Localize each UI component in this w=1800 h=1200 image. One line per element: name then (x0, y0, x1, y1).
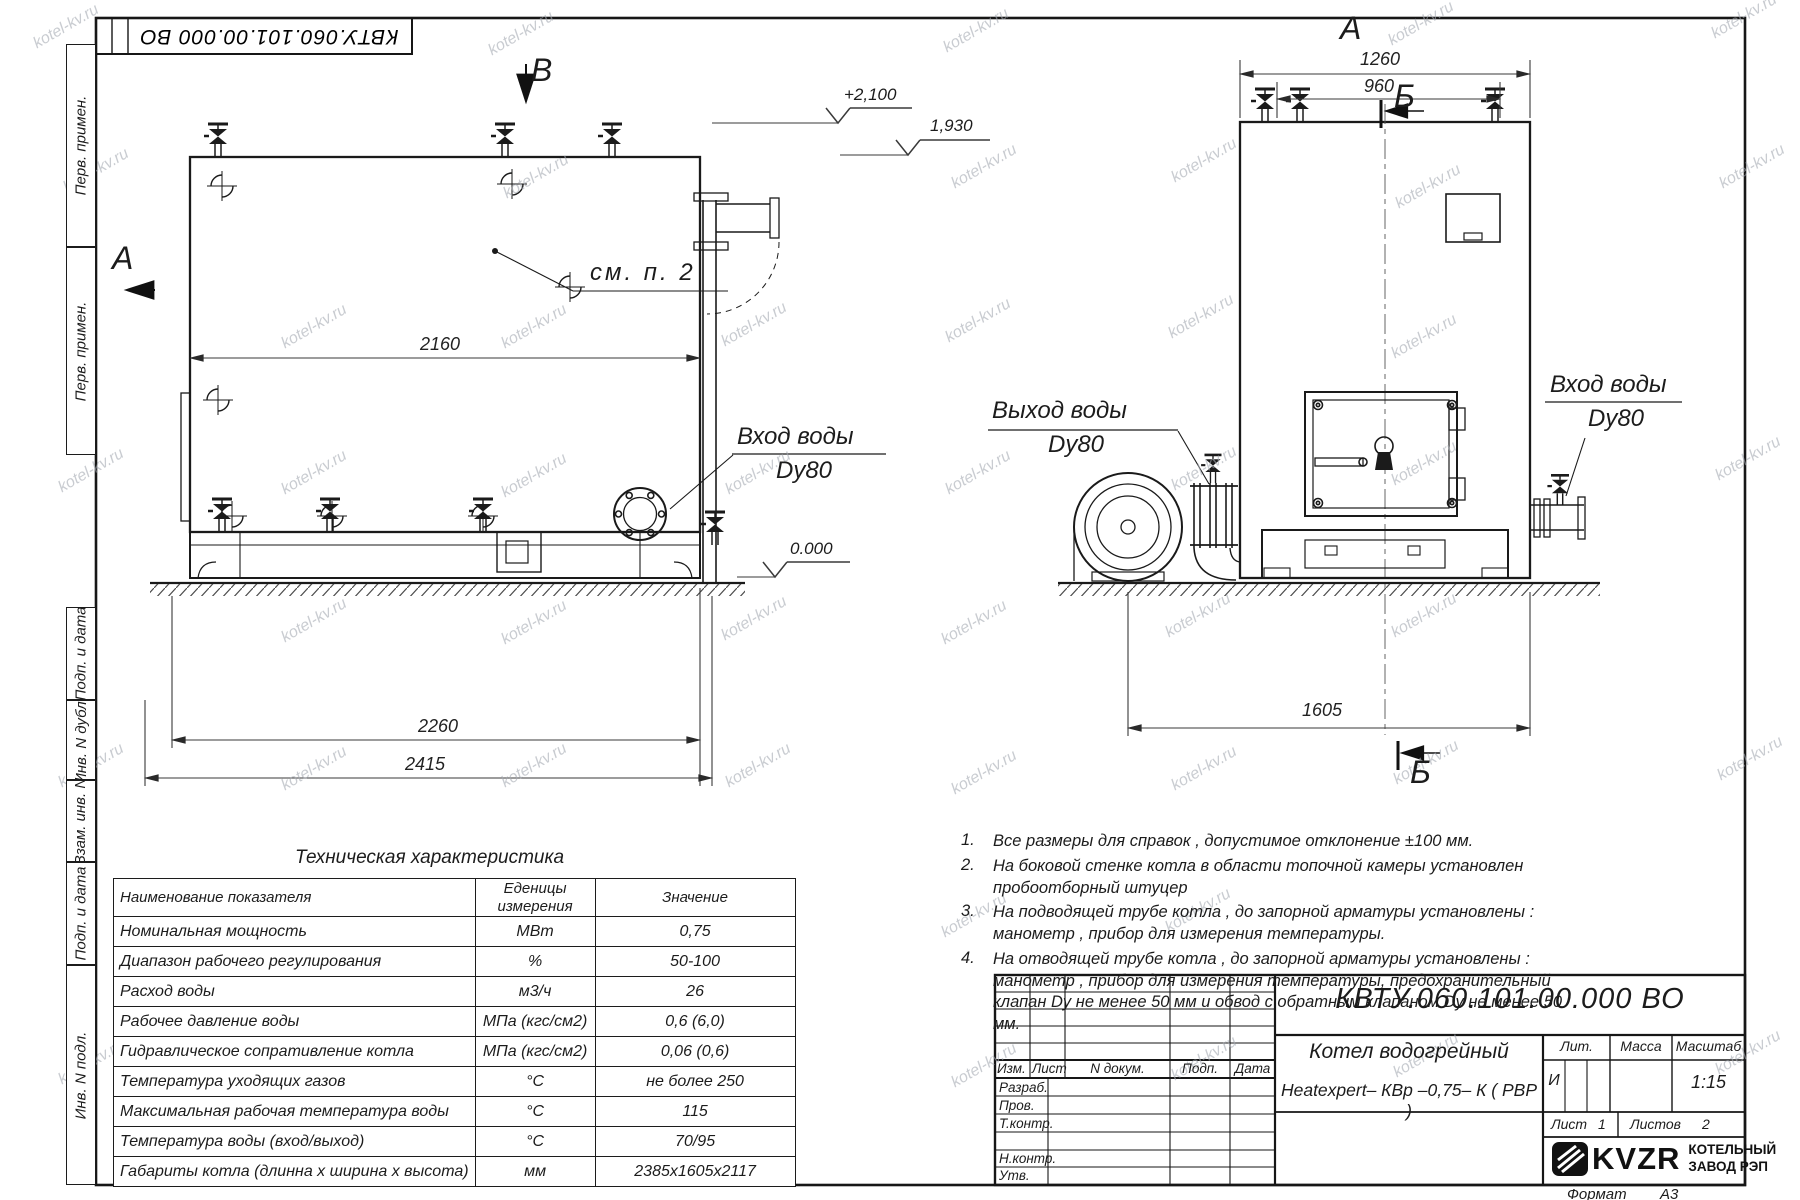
elevation-2100: +2,100 (844, 86, 896, 104)
table-row: Расход водым3/ч26 (114, 977, 796, 1007)
tech-table: Наименование показателя Еденицы измерени… (113, 878, 796, 1187)
view-mark-a-top: А (1340, 12, 1361, 46)
dim-1605: 1605 (1302, 701, 1342, 720)
table-row: Габариты котла (длинна х ширина х высота… (114, 1157, 796, 1187)
note-item: 2.На боковой стенке котла в области топо… (961, 856, 1586, 900)
water-inlet-label-front: Вход воды (1550, 372, 1667, 397)
tech-col-value: Значение (595, 879, 795, 917)
dim-2160: 2160 (420, 335, 460, 354)
format-label: Формат (1567, 1186, 1627, 1200)
right-view-dimensions (1128, 60, 1530, 770)
strip-cell-podp-data-2: Подп. и дата (66, 862, 96, 965)
kvzr-logo-icon (1551, 1141, 1589, 1177)
strip-cell-podp-data-1: Подп. и дата (66, 607, 96, 700)
row-approved: Утв. (999, 1168, 1030, 1183)
logo-text: KVZR (1592, 1141, 1680, 1177)
position-mark-icons (203, 169, 585, 531)
section-mark-b-top: Б (1394, 80, 1415, 114)
col-izm: Изм. (997, 1061, 1029, 1076)
row-tcontrol: Т.контр. (999, 1116, 1053, 1131)
water-inlet-dn-front: Dy80 (1588, 406, 1644, 431)
water-inlet-dn-side: Dy80 (776, 458, 832, 483)
strip-cell-vzam-inv: Взам. инв. N (66, 780, 96, 862)
sheets-value: 2 (1702, 1116, 1710, 1132)
valve-icons-left-view (204, 124, 725, 545)
dim-1260: 1260 (1360, 50, 1400, 69)
note-item: 3.На подводящей трубе котла , до запорно… (961, 902, 1586, 946)
strip-cell-inv-podl: Инв. N подл. (66, 965, 96, 1185)
format-value: А3 (1660, 1186, 1678, 1200)
table-row: Максимальная рабочая температура воды°С1… (114, 1097, 796, 1127)
dim-2260: 2260 (418, 717, 458, 736)
tech-col-units: Еденицы измерения (475, 879, 595, 917)
strip-cell-perv-primen-2: Перв. примен. (66, 247, 96, 455)
title-doc-number: КВТУ.060.101.00.000 ВО (1280, 983, 1740, 1016)
row-developed: Разраб. (999, 1080, 1048, 1095)
row-ncontrol: Н.контр. (999, 1151, 1056, 1166)
section-mark-b-bottom: Б (1410, 756, 1431, 790)
scale-value: 1:15 (1672, 1072, 1745, 1093)
table-row: Рабочее давление водыМПа (кгс/см2)0,6 (6… (114, 1007, 796, 1037)
elevation-0000: 0.000 (790, 540, 833, 558)
mass-label: Масса (1610, 1038, 1672, 1054)
view-mark-a-left: А (112, 242, 133, 276)
left-view-dimensions (128, 64, 990, 786)
col-sign: Подп. (1171, 1061, 1229, 1076)
table-row: Температура воды (вход/выход)°С70/95 (114, 1127, 796, 1157)
tech-col-name: Наименование показателя (114, 879, 476, 917)
sheet-label: Лист (1551, 1116, 1587, 1132)
scale-label: Масштаб (1672, 1038, 1745, 1054)
table-row: Гидравлическое сопративление котлаМПа (к… (114, 1037, 796, 1067)
table-row: Диапазон рабочего регулирования%50-100 (114, 947, 796, 977)
drawing-sheet: kotel-kv.rukotel-kv.rukotel-kv.rukotel-k… (0, 0, 1800, 1200)
product-name-line1: Котел водогрейный (1277, 1040, 1541, 1064)
water-outlet-dn: Dy80 (1048, 432, 1104, 457)
corner-stamp-number: КВТУ.060.101.00.000 ВО (128, 20, 410, 52)
table-row: Номинальная мощностьМВт0,75 (114, 917, 796, 947)
note-item: 1.Все размеры для справок , допустимое о… (961, 831, 1586, 853)
see-note-ref: см. п. 2 (590, 260, 696, 285)
dim-960: 960 (1364, 77, 1394, 96)
strip-cell-perv-primen-1: Перв. примен. (66, 44, 96, 247)
section-mark-v: В (531, 54, 552, 88)
strip-cell-inv-dubl: Инв. N дубл. (66, 700, 96, 780)
boiler-side-view (150, 124, 886, 596)
sheet-value: 1 (1598, 1116, 1606, 1132)
col-date: Дата (1231, 1061, 1274, 1076)
product-name-line2: Heatexpert– КВр –0,75– К ( РВР ) (1277, 1080, 1541, 1122)
lit-label: Лит. (1543, 1038, 1610, 1054)
water-outlet-label: Выход воды (992, 398, 1127, 423)
lit-value: И (1543, 1072, 1565, 1090)
company-logo: KVZR КОТЕЛЬНЫЙ ЗАВОД РЭП (1551, 1141, 1776, 1177)
table-row: Температура уходящих газов°Сне более 250 (114, 1067, 796, 1097)
col-list: Лист (1032, 1061, 1064, 1076)
col-doc: N докум. (1066, 1061, 1169, 1076)
tech-table-title: Техническая характеристика (295, 848, 564, 868)
water-inlet-label-side: Вход воды (737, 424, 854, 449)
company-name: КОТЕЛЬНЫЙ ЗАВОД РЭП (1688, 1142, 1776, 1176)
sheets-label: Листов (1630, 1116, 1681, 1132)
dim-2415: 2415 (405, 755, 445, 774)
row-checked: Пров. (999, 1098, 1035, 1113)
elevation-1930: 1,930 (930, 117, 973, 135)
